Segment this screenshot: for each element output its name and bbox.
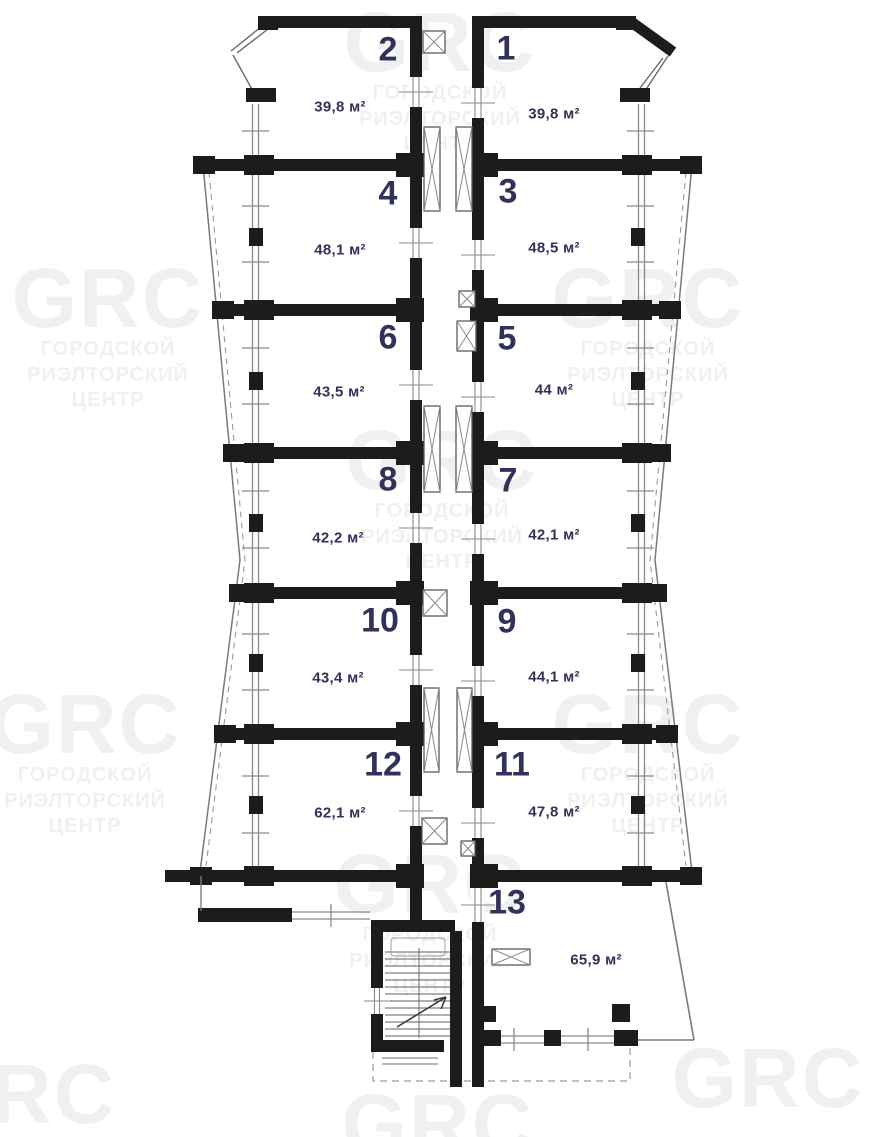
unit-9-number: 9 [498,603,517,642]
unit-6-area: 43,5 м² [313,384,365,401]
unit-6-number: 6 [379,319,398,358]
unit-4-number: 4 [379,175,398,214]
balcony-outline-left [200,165,245,872]
unit-13-area: 65,9 м² [570,952,622,969]
bay-window-left [231,23,268,93]
unit-1-number: 1 [497,30,516,69]
unit-8-number: 8 [379,461,398,500]
unit-10-area: 43,4 м² [312,670,364,687]
bay-window-right [630,21,673,94]
staircase-direction-arrow [397,997,446,1027]
unit-11-area: 47,8 м² [528,804,580,821]
staircase-treads [385,938,453,1038]
unit-3-area: 48,5 м² [528,240,580,257]
unit-13-number: 13 [488,884,526,923]
unit-7-area: 42,1 м² [528,527,580,544]
unit-12-number: 12 [364,746,402,785]
unit-12-area: 62,1 м² [314,805,366,822]
unit-5-number: 5 [498,320,517,359]
unit-3-number: 3 [499,173,518,212]
unit-13-outline [638,882,694,1040]
unit-1-area: 39,8 м² [528,106,580,123]
unit-8-area: 42,2 м² [312,530,364,547]
unit-2-area: 39,8 м² [314,99,366,116]
unit-11-number: 11 [494,746,530,785]
floorplan-canvas: GRC ГОРОДСКОЙ РИЭЛТОРСКИЙ ЦЕНТР GRC ГОРО… [0,0,896,1137]
unit-7-number: 7 [499,462,518,501]
unit-9-area: 44,1 м² [528,669,580,686]
unit-4-area: 48,1 м² [314,242,366,259]
floorplan-svg [0,0,896,1137]
unit-2-number: 2 [379,31,398,70]
unit-10-number: 10 [361,602,399,641]
unit-5-area: 44 м² [535,382,573,399]
balcony-outline-right [650,165,692,872]
